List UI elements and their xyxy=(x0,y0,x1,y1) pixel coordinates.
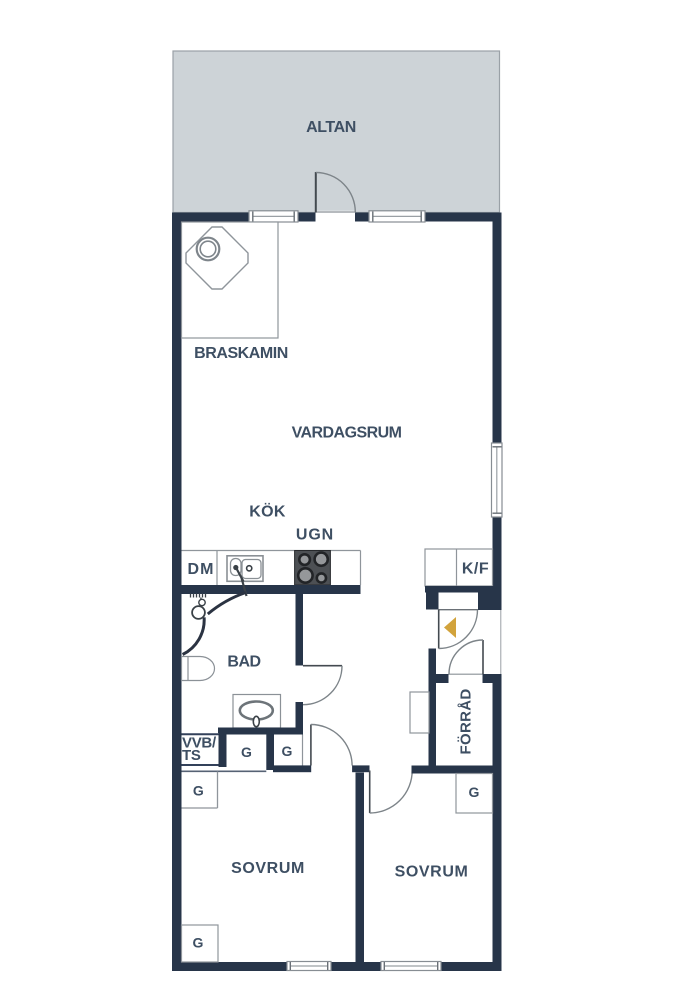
svg-text:VARDAGSRUM: VARDAGSRUM xyxy=(292,425,402,442)
svg-text:G: G xyxy=(469,784,480,800)
svg-text:KÖK: KÖK xyxy=(249,502,286,521)
svg-text:UGN: UGN xyxy=(296,527,334,544)
svg-text:SOVRUM: SOVRUM xyxy=(395,864,469,881)
svg-text:G: G xyxy=(193,935,204,951)
svg-text:G: G xyxy=(282,743,293,759)
svg-text:TS: TS xyxy=(182,747,201,764)
svg-text:BRASKAMIN: BRASKAMIN xyxy=(194,345,288,362)
svg-text:G: G xyxy=(193,782,204,798)
svg-text:K/F: K/F xyxy=(462,561,489,578)
svg-text:BAD: BAD xyxy=(227,654,260,671)
svg-text:SOVRUM: SOVRUM xyxy=(231,860,305,877)
svg-text:ALTAN: ALTAN xyxy=(306,119,356,136)
svg-text:G: G xyxy=(241,744,252,760)
svg-text:DM: DM xyxy=(188,561,215,578)
svg-text:FÖRRÅD: FÖRRÅD xyxy=(458,689,475,755)
